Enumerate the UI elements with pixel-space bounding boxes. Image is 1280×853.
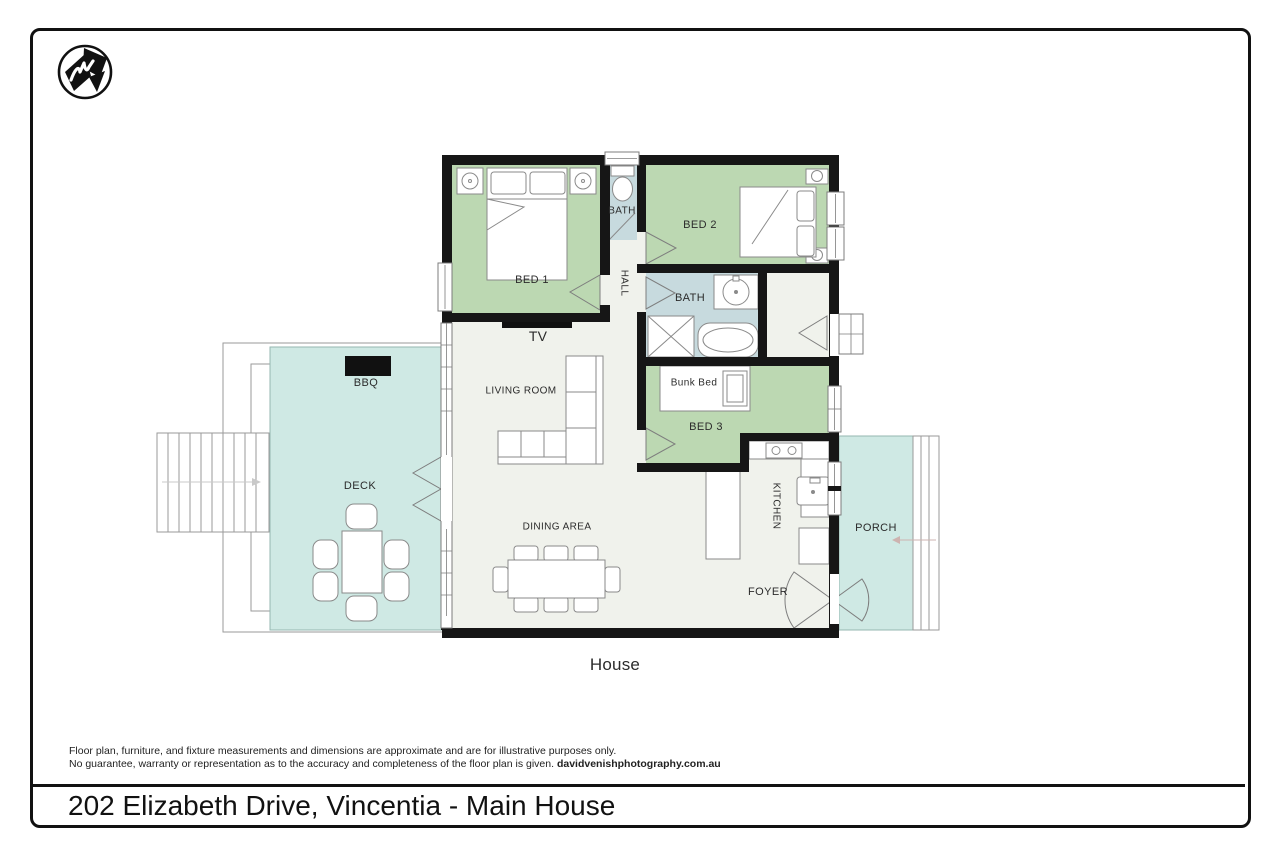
disclaimer-line1: Floor plan, furniture, and fixture measu… [69,745,721,758]
label-tv: TV [529,328,547,344]
room-label-bed2: BED 2 [683,219,717,231]
page-title: 202 Elizabeth Drive, Vincentia - Main Ho… [68,790,615,822]
room-label-deck: DECK [344,480,376,492]
photographer-website: davidvenishphotography.com.au [557,758,721,770]
room-label-living-room: LIVING ROOM [485,386,556,397]
room-label-bed3: BED 3 [689,421,723,433]
room-label-hall: HALL [619,270,630,297]
bunk-bed [660,366,750,411]
room-label-bath-mid: BATH [675,292,705,304]
room-label-foyer: FOYER [748,586,788,598]
room-label-kitchen: KITCHEN [771,483,782,530]
plan-title-house: House [590,655,640,675]
title-divider [32,784,1245,787]
disclaimer-line2-text: No guarantee, warranty or representation… [69,758,554,770]
floor-plan-page: BED 1 BATH HALL BED 2 BATH Bunk Bed BED … [0,0,1280,853]
label-bunk-bed: Bunk Bed [671,378,718,389]
room-label-porch: PORCH [855,522,897,534]
room-label-bath-top: BATH [608,206,636,217]
foyer-opening [830,574,839,624]
disclaimer: Floor plan, furniture, and fixture measu… [69,745,721,770]
laundry-opening [830,314,839,356]
label-bbq: BBQ [354,377,378,389]
bbq-unit [345,356,391,376]
disclaimer-line2: No guarantee, warranty or representation… [69,758,721,771]
room-label-bed1: BED 1 [515,274,549,286]
kitchen-island [706,467,740,559]
room-label-dining-area: DINING AREA [523,522,592,533]
floor-plan-drawing [0,0,1280,853]
